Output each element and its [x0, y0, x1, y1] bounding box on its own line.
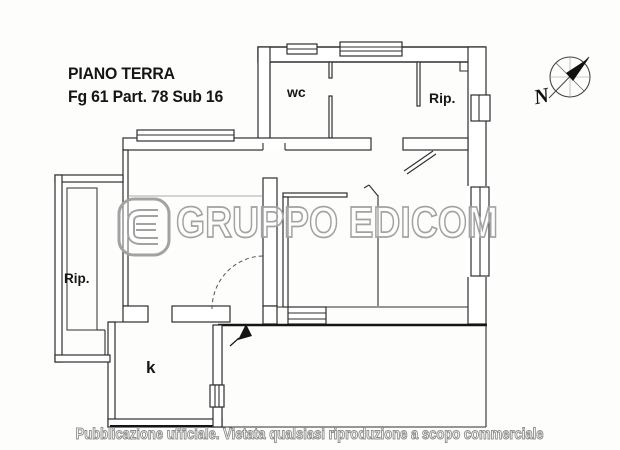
room-label-kitchen: k [146, 358, 155, 378]
plan-title-line2: Fg 61 Part. 78 Sub 16 [68, 85, 223, 108]
room-label-wc: wc [287, 84, 306, 100]
plan-title-line1: PIANO TERRA [68, 62, 223, 85]
lower-terrace-walls [222, 325, 486, 427]
window-top-large [340, 42, 402, 56]
door-swing-arc [212, 256, 263, 309]
main-top-wall [123, 130, 468, 174]
room-label-rip-left: Rip. [64, 271, 90, 286]
watermark: GRUPPO EDICOM [116, 196, 555, 258]
door-flag [364, 185, 378, 196]
door-leaf-top [404, 151, 436, 174]
footer-disclaimer-text: Pubblicazione ufficiale. Vietata qualsia… [76, 426, 544, 444]
steps [288, 307, 326, 324]
window-kitchen [210, 385, 224, 407]
window-top-small [287, 44, 317, 54]
window-right-top [471, 95, 490, 121]
watermark-text: GRUPPO EDICOM [176, 198, 498, 248]
kitchen-walls [108, 322, 224, 427]
footer-disclaimer: Pubblicazione ufficiale. Vietata qualsia… [0, 426, 620, 444]
edicom-logo-icon [116, 196, 172, 258]
compass-icon [549, 56, 591, 98]
room-label-rip-top: Rip. [429, 90, 455, 106]
window-living-top [137, 130, 234, 141]
entrance-arrow-icon [230, 324, 252, 346]
cadastral-floorplan-page: PIANO TERRA Fg 61 Part. 78 Sub 16 wc Rip… [0, 0, 620, 450]
plan-title: PIANO TERRA Fg 61 Part. 78 Sub 16 [68, 62, 223, 108]
